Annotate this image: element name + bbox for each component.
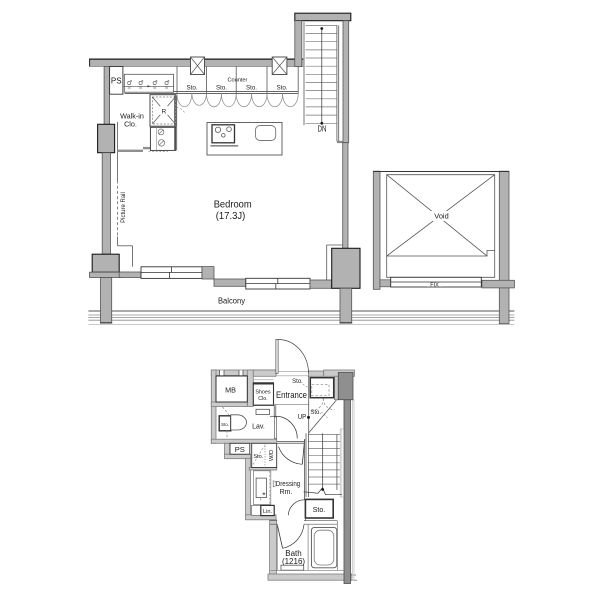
svg-text:Sto.: Sto. — [292, 379, 303, 385]
svg-text:Sto.: Sto. — [216, 85, 227, 92]
svg-text:DN: DN — [318, 124, 327, 133]
svg-text:Sto.: Sto. — [313, 507, 326, 514]
svg-text:Shoes: Shoes — [255, 390, 271, 396]
svg-text:Picture Rail: Picture Rail — [121, 192, 127, 223]
svg-text:(17.3J): (17.3J) — [216, 211, 246, 222]
svg-text:Rm.: Rm. — [280, 489, 293, 496]
svg-text:Clo.: Clo. — [124, 120, 137, 129]
svg-text:Sto.: Sto. — [221, 422, 229, 427]
svg-text:Sto.: Sto. — [276, 85, 287, 92]
svg-text:UP: UP — [298, 412, 307, 421]
svg-text:Sto.: Sto. — [246, 85, 257, 92]
svg-text:FIX: FIX — [430, 283, 439, 289]
svg-text:Counter: Counter — [227, 77, 247, 83]
svg-text:Clo.: Clo. — [258, 396, 268, 402]
svg-text:MB: MB — [225, 386, 236, 395]
svg-text:PS: PS — [111, 77, 122, 86]
svg-text:Bedroom: Bedroom — [214, 199, 252, 211]
svg-text:Void: Void — [434, 212, 448, 221]
svg-text:(1216): (1216) — [282, 557, 305, 566]
svg-text:Sto.: Sto. — [186, 85, 197, 92]
svg-text:Entrance: Entrance — [276, 390, 307, 400]
svg-text:W/D: W/D — [269, 450, 275, 461]
svg-text:Lin.: Lin. — [263, 509, 272, 515]
svg-text:R: R — [162, 108, 167, 115]
svg-text:Dressing: Dressing — [276, 481, 301, 488]
svg-text:Sto.: Sto. — [253, 454, 263, 460]
svg-text:PS: PS — [235, 445, 245, 454]
svg-text:Lav.: Lav. — [252, 424, 265, 431]
svg-text:Sto.: Sto. — [310, 410, 321, 416]
svg-text:Balcony: Balcony — [218, 297, 246, 306]
